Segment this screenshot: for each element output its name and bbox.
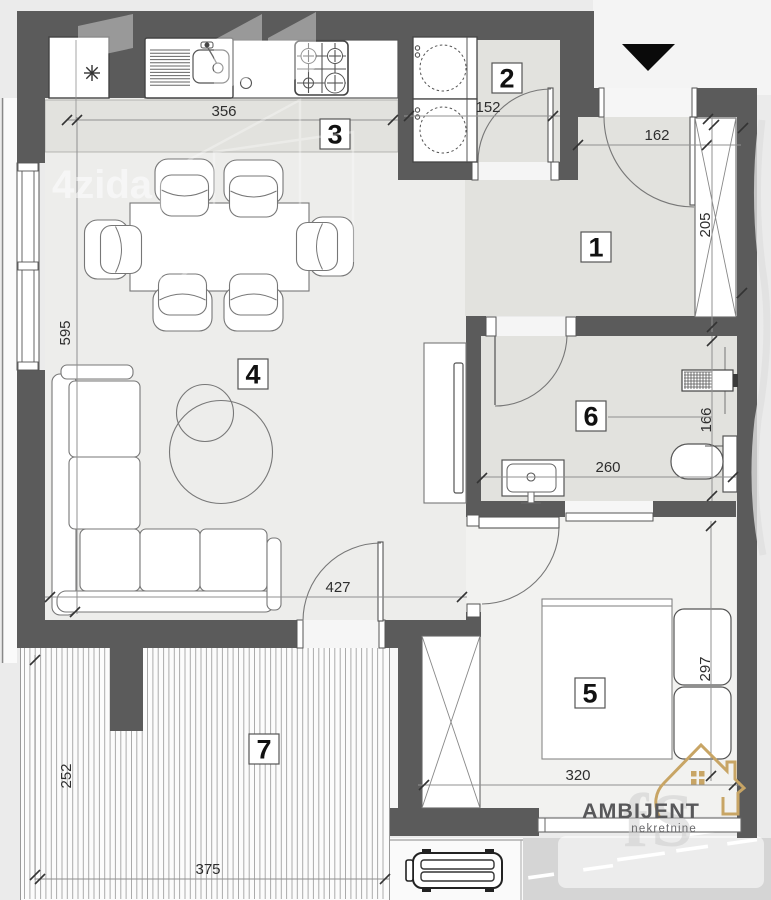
svg-text:6: 6 <box>583 402 598 432</box>
svg-text:2: 2 <box>499 64 514 94</box>
svg-text:5: 5 <box>582 679 597 709</box>
svg-text:4zida: 4zida <box>52 163 153 207</box>
svg-text:320: 320 <box>565 767 590 784</box>
svg-text:595: 595 <box>57 320 74 345</box>
svg-text:nekretnine: nekretnine <box>631 823 697 835</box>
svg-text:1: 1 <box>588 233 603 263</box>
svg-text:375: 375 <box>195 861 220 878</box>
svg-text:AMBIJENT: AMBIJENT <box>582 799 700 823</box>
svg-text:205: 205 <box>697 212 714 237</box>
svg-text:356: 356 <box>211 103 236 120</box>
svg-text:166: 166 <box>698 407 715 432</box>
svg-text:4: 4 <box>245 360 260 390</box>
svg-text:152: 152 <box>475 99 500 116</box>
svg-text:297: 297 <box>697 656 714 681</box>
svg-text:7: 7 <box>256 735 271 765</box>
svg-text:427: 427 <box>325 579 350 596</box>
svg-text:162: 162 <box>644 127 669 144</box>
svg-text:260: 260 <box>595 459 620 476</box>
svg-text:252: 252 <box>58 763 75 788</box>
